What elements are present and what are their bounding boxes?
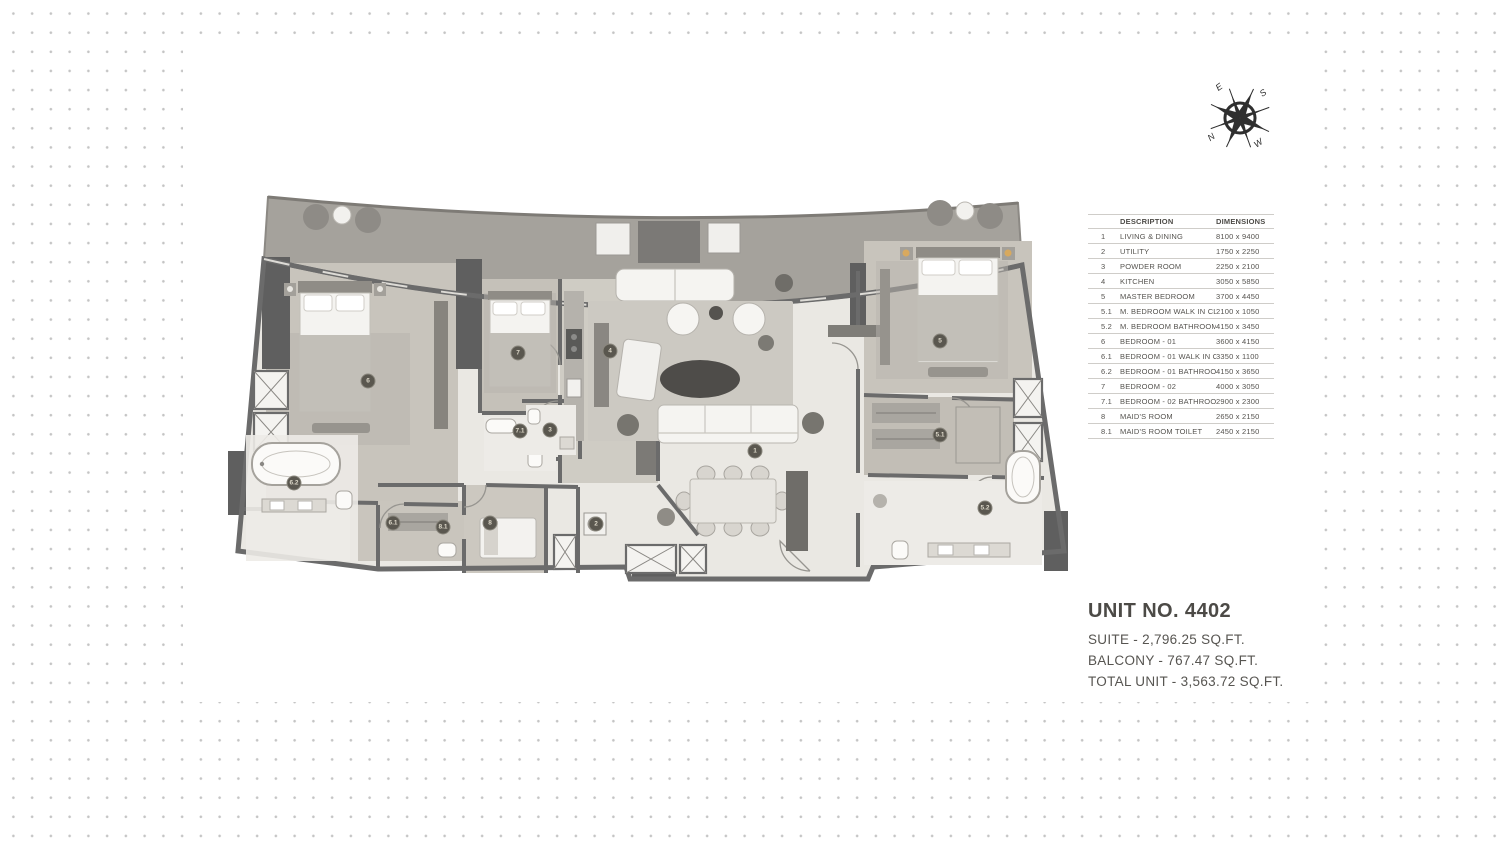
room-badge: 4 (603, 344, 618, 359)
room-no: 5.1 (1088, 307, 1120, 316)
room-description: BEDROOM - 01 BATHROOM (1120, 367, 1216, 376)
room-description: M. BEDROOM BATHROOM (1120, 322, 1216, 331)
legend-row: 7BEDROOM - 024000 x 3050 (1088, 379, 1274, 394)
room-description: BEDROOM - 01 (1120, 337, 1216, 346)
room-badge: 5.2 (978, 501, 993, 516)
total-area: TOTAL UNIT - 3,563.72 SQ.FT. (1088, 674, 1283, 689)
room-description: BEDROOM - 02 (1120, 382, 1216, 391)
legend-header-row: DESCRIPTION DIMENSIONS (1088, 214, 1274, 229)
room-dimensions: 2650 x 2150 (1216, 412, 1274, 421)
room-dimensions: 2450 x 2150 (1216, 427, 1274, 436)
room-no: 4 (1088, 277, 1120, 286)
room-dimensions: 1750 x 2250 (1216, 247, 1274, 256)
room-badge: 7 (511, 346, 526, 361)
room-description: UTILITY (1120, 247, 1216, 256)
legend-row: 8MAID'S ROOM2650 x 2150 (1088, 409, 1274, 424)
legend-row: 6.1BEDROOM - 01 WALK IN CLOSET3350 x 110… (1088, 349, 1274, 364)
room-no: 1 (1088, 232, 1120, 241)
floor-plan: 1 2 3 4 5 5.1 5.2 6 6.1 6.2 7 7.1 8 8.1 (228, 183, 1076, 585)
room-no: 6 (1088, 337, 1120, 346)
room-no: 5 (1088, 292, 1120, 301)
room-dimensions: 3700 x 4450 (1216, 292, 1274, 301)
legend-header-dimensions: DIMENSIONS (1216, 217, 1274, 226)
room-no: 7.1 (1088, 397, 1120, 406)
room-dimensions: 8100 x 9400 (1216, 232, 1274, 241)
room-no: 3 (1088, 262, 1120, 271)
legend-row: 5.2M. BEDROOM BATHROOM4150 x 3450 (1088, 319, 1274, 334)
balcony-area: BALCONY - 767.47 SQ.FT. (1088, 653, 1283, 668)
room-no: 2 (1088, 247, 1120, 256)
room-dimensions: 3600 x 4150 (1216, 337, 1274, 346)
floor-plan-drawing (228, 183, 1076, 585)
unit-info: UNIT NO. 4402 SUITE - 2,796.25 SQ.FT. BA… (1088, 600, 1283, 689)
room-badge: 2 (589, 517, 604, 532)
legend-header-description: DESCRIPTION (1120, 217, 1216, 226)
room-badge: 8 (483, 516, 498, 531)
room-dimensions: 2100 x 1050 (1216, 307, 1274, 316)
room-description: MASTER BEDROOM (1120, 292, 1216, 301)
legend-row: 4KITCHEN3050 x 5850 (1088, 274, 1274, 289)
room-badge: 3 (543, 423, 558, 438)
legend-row: 3POWDER ROOM2250 x 2100 (1088, 259, 1274, 274)
suite-area: SUITE - 2,796.25 SQ.FT. (1088, 632, 1283, 647)
room-description: MAID'S ROOM TOILET (1120, 427, 1216, 436)
room-description: BEDROOM - 02 BATHROOM (1120, 397, 1216, 406)
room-badge: 8.1 (436, 520, 451, 535)
compass-icon (1202, 80, 1278, 156)
room-dimensions: 3350 x 1100 (1216, 352, 1274, 361)
room-dimensions: 2250 x 2100 (1216, 262, 1274, 271)
room-description: BEDROOM - 01 WALK IN CLOSET (1120, 352, 1216, 361)
room-no: 6.2 (1088, 367, 1120, 376)
room-badge: 5.1 (933, 428, 948, 443)
room-badge: 5 (933, 334, 948, 349)
legend-row: 8.1MAID'S ROOM TOILET2450 x 2150 (1088, 424, 1274, 439)
room-dimensions: 2900 x 2300 (1216, 397, 1274, 406)
room-badge: 6.1 (386, 516, 401, 531)
room-description: POWDER ROOM (1120, 262, 1216, 271)
legend-row: 7.1BEDROOM - 02 BATHROOM2900 x 2300 (1088, 394, 1274, 409)
room-dimensions: 4150 x 3450 (1216, 322, 1274, 331)
room-no: 8 (1088, 412, 1120, 421)
room-dimensions: 4000 x 3050 (1216, 382, 1274, 391)
legend-row: 5.1M. BEDROOM WALK IN CLOSET2100 x 1050 (1088, 304, 1274, 319)
legend-row: 6BEDROOM - 013600 x 4150 (1088, 334, 1274, 349)
room-no: 7 (1088, 382, 1120, 391)
unit-number-title: UNIT NO. 4402 (1088, 600, 1283, 623)
legend-row: 6.2BEDROOM - 01 BATHROOM4150 x 3650 (1088, 364, 1274, 379)
room-badge: 7.1 (513, 424, 528, 439)
room-badge: 6.2 (287, 476, 302, 491)
room-dimensions: 4150 x 3650 (1216, 367, 1274, 376)
room-no: 5.2 (1088, 322, 1120, 331)
room-badge: 1 (748, 444, 763, 459)
room-legend-table: DESCRIPTION DIMENSIONS 1LIVING & DINING8… (1088, 214, 1274, 439)
room-no: 8.1 (1088, 427, 1120, 436)
legend-row: 5MASTER BEDROOM3700 x 4450 (1088, 289, 1274, 304)
room-description: MAID'S ROOM (1120, 412, 1216, 421)
room-dimensions: 3050 x 5850 (1216, 277, 1274, 286)
page: { "compass": { "n": "N", "e": "E", "s": … (0, 0, 1500, 842)
compass-rose: E S N W (1202, 80, 1278, 156)
room-description: LIVING & DINING (1120, 232, 1216, 241)
room-no: 6.1 (1088, 352, 1120, 361)
legend-row: 1LIVING & DINING8100 x 9400 (1088, 229, 1274, 244)
legend-row: 2UTILITY1750 x 2250 (1088, 244, 1274, 259)
room-badge: 6 (361, 374, 376, 389)
room-description: KITCHEN (1120, 277, 1216, 286)
room-description: M. BEDROOM WALK IN CLOSET (1120, 307, 1216, 316)
